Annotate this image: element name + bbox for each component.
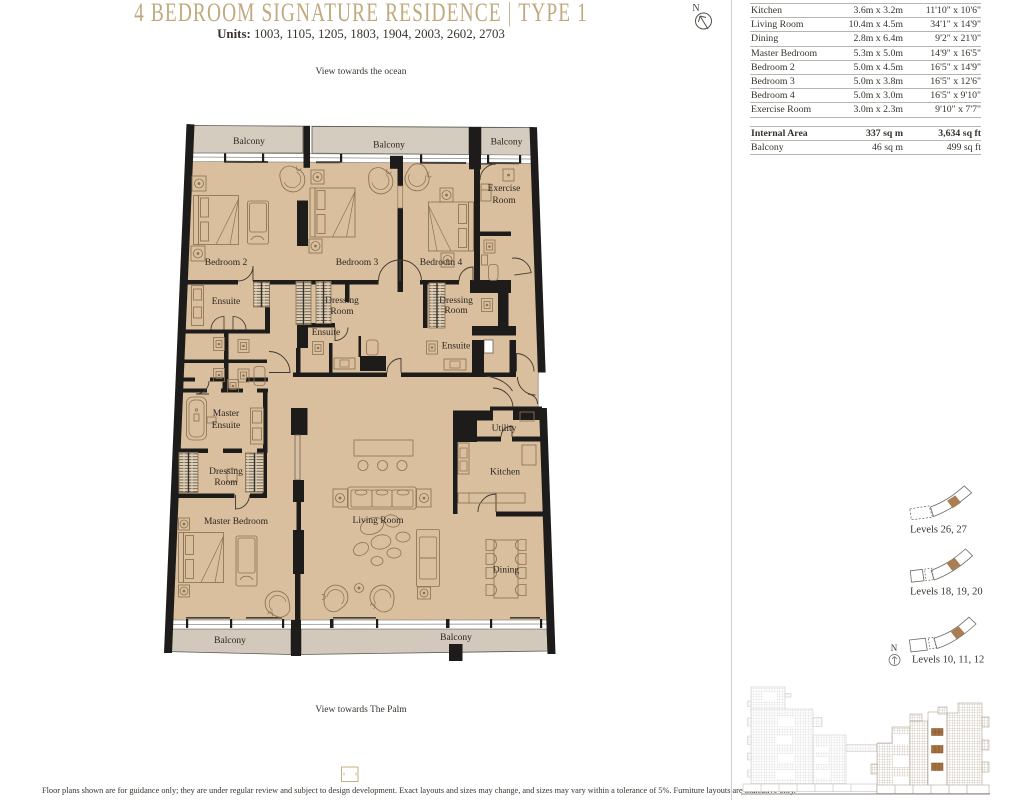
svg-text:N: N <box>891 643 898 653</box>
svg-text:N: N <box>692 3 699 14</box>
svg-text:Master: Master <box>213 409 240 419</box>
svg-text:Balcony: Balcony <box>233 137 265 147</box>
svg-text:Dressing: Dressing <box>325 296 359 306</box>
svg-text:Balcony: Balcony <box>373 141 405 151</box>
svg-text:Levels 26, 27: Levels 26, 27 <box>910 525 967 536</box>
svg-text:Ensuite: Ensuite <box>442 342 471 352</box>
svg-text:Bedroom 2: Bedroom 2 <box>205 258 248 268</box>
svg-text:Exercise: Exercise <box>488 184 521 194</box>
svg-text:Utility: Utility <box>492 424 517 434</box>
svg-text:Ensuite: Ensuite <box>312 328 341 338</box>
svg-text:Room: Room <box>214 478 238 488</box>
svg-text:Living Room: Living Room <box>353 516 405 526</box>
svg-text:Room: Room <box>492 196 516 206</box>
svg-text:Ensuite: Ensuite <box>212 297 241 307</box>
svg-text:Dining: Dining <box>493 566 520 576</box>
svg-text:Bedroom 3: Bedroom 3 <box>336 258 379 268</box>
svg-text:Room: Room <box>330 307 354 317</box>
svg-text:Room: Room <box>444 306 468 316</box>
svg-text:Balcony: Balcony <box>214 636 246 646</box>
svg-text:Master Bedroom: Master Bedroom <box>204 517 269 527</box>
svg-text:Dressing: Dressing <box>439 296 473 306</box>
svg-text:Dressing: Dressing <box>209 467 243 477</box>
svg-text:Kitchen: Kitchen <box>490 468 520 478</box>
svg-text:Balcony: Balcony <box>440 633 472 643</box>
svg-text:Bedroom 4: Bedroom 4 <box>420 258 463 268</box>
svg-text:Balcony: Balcony <box>491 138 523 148</box>
svg-text:Levels 18, 19, 20: Levels 18, 19, 20 <box>910 587 983 598</box>
svg-text:Ensuite: Ensuite <box>212 421 241 431</box>
svg-text:Levels 10, 11, 12: Levels 10, 11, 12 <box>912 655 984 666</box>
